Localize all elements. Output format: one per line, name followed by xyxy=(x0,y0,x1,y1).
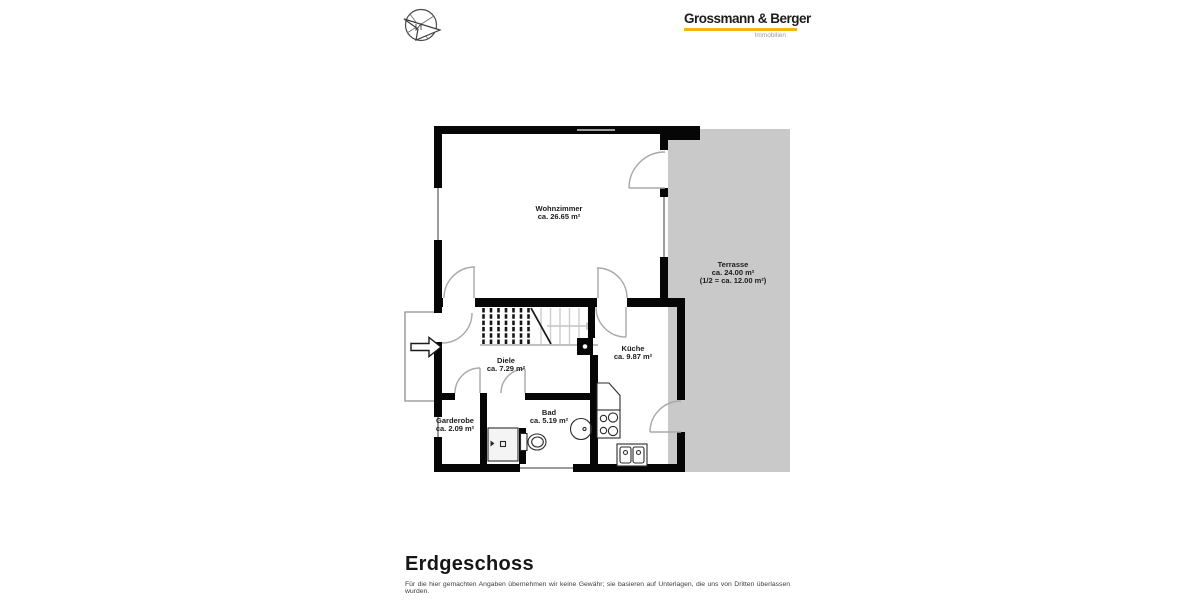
doors xyxy=(442,152,681,432)
floorplan-page: Wohnzimmer ca. 26.65 m² Terrasse ca. 24.… xyxy=(0,0,1200,600)
company-logo: Grossmann & Berger Immobilien xyxy=(684,11,797,39)
logo-subtitle: Immobilien xyxy=(684,32,797,39)
disclaimer-text: Für die hier gemachten Angaben übernehme… xyxy=(405,581,790,595)
room-area-note: (1/2 = ca. 12.00 m²) xyxy=(700,277,767,285)
livingroom-left-door-arc xyxy=(444,267,475,298)
floor-title: Erdgeschoss xyxy=(405,553,534,576)
compass-rose-icon xyxy=(404,10,440,41)
room-label-garderobe: Garderobe ca. 2.09 m² xyxy=(436,417,474,433)
room-area: ca. 9.87 m² xyxy=(614,353,652,361)
kitchen-door-arc xyxy=(596,307,626,337)
stove xyxy=(597,410,620,438)
logo-underline xyxy=(684,28,797,31)
terrace-area xyxy=(668,129,790,472)
room-label-diele: Diele ca. 7.29 m² xyxy=(487,357,525,373)
room-area: ca. 2.09 m² xyxy=(436,425,474,433)
washbasin xyxy=(571,419,592,440)
wardrobe-door-arc xyxy=(455,368,480,393)
livingroom-right-door-arc xyxy=(597,268,627,298)
room-area: ca. 7.29 m² xyxy=(487,365,525,373)
room-area: ca. 26.65 m² xyxy=(536,213,583,221)
floor-plan-drawing xyxy=(0,0,1200,600)
chimney-flue-dot xyxy=(583,344,588,349)
shower-tray xyxy=(488,428,518,461)
room-area: ca. 5.19 m² xyxy=(530,417,568,425)
room-label-kueche: Küche ca. 9.87 m² xyxy=(614,345,652,361)
room-label-wohnzimmer: Wohnzimmer ca. 26.65 m² xyxy=(536,205,583,221)
toilet xyxy=(521,434,547,451)
kitchen-corner-cabinet xyxy=(597,383,620,410)
room-label-terrasse: Terrasse ca. 24.00 m² (1/2 = ca. 12.00 m… xyxy=(700,261,767,285)
kitchen-sink xyxy=(617,444,647,466)
logo-title: Grossmann & Berger xyxy=(684,11,797,26)
entrance-door-arc xyxy=(442,313,472,343)
room-label-bad: Bad ca. 5.19 m² xyxy=(530,409,568,425)
terrace-door-arc xyxy=(629,152,665,188)
